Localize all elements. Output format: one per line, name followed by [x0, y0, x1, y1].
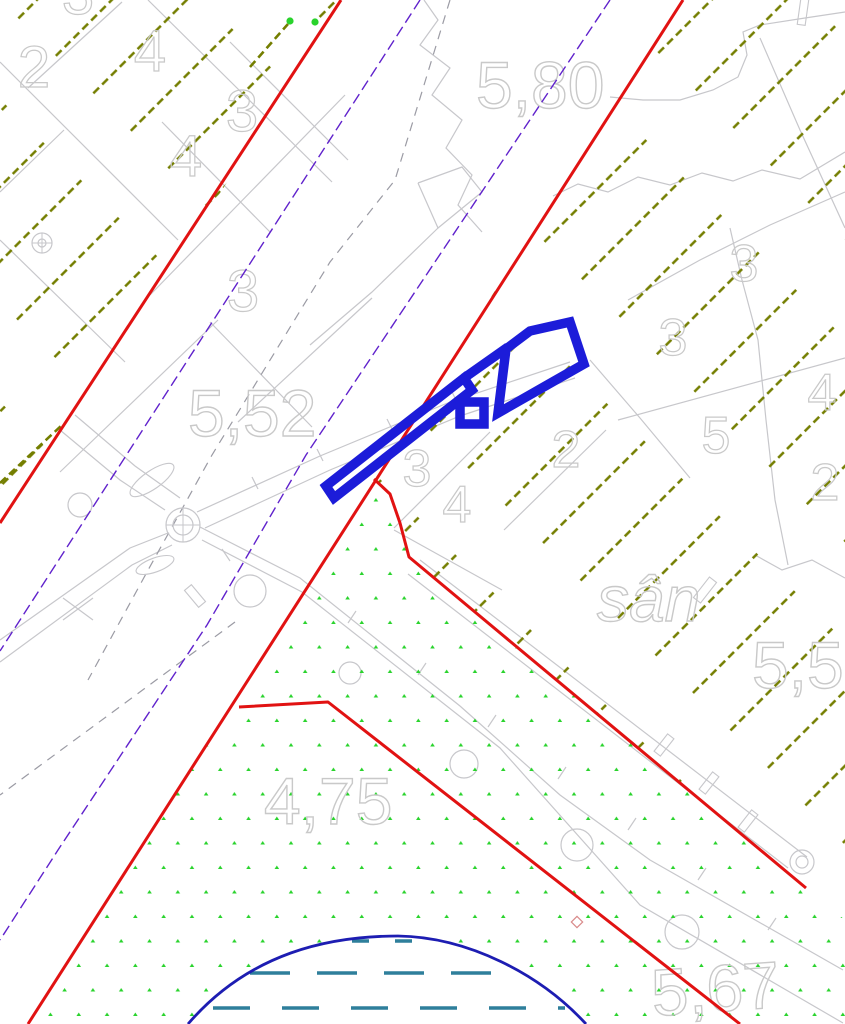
- parcel-number: 3: [730, 235, 759, 293]
- parcel-number: 3: [659, 309, 688, 367]
- parcel-number: 2: [552, 421, 581, 479]
- terrain-blob-outline: [134, 552, 176, 579]
- parcel-number: 3: [403, 440, 432, 498]
- parcel-number: 2: [18, 35, 50, 100]
- road-tick-mark: [222, 549, 230, 561]
- grass-hatch-region: [0, 0, 345, 533]
- parcel-number: 3: [227, 259, 259, 324]
- parcel-line: [420, 0, 482, 232]
- parcel-number: 5: [702, 407, 731, 465]
- elevation-label: 4,75: [264, 764, 392, 838]
- survey-point-marker: [311, 18, 318, 25]
- cadastral-map-view: 2433435,805,5234233542sân5,54,755,67: [0, 0, 845, 1024]
- parcel-line: [60, 430, 165, 510]
- culvert-symbol: [184, 585, 205, 608]
- elevation-label: 5,67: [649, 947, 782, 1024]
- parcel-number: 4: [443, 476, 472, 534]
- elevation-label: 5,5: [752, 628, 844, 702]
- parcel-number: 4: [808, 364, 837, 422]
- elevation-label: 5,80: [476, 48, 604, 122]
- elevation-label: 5,52: [188, 376, 316, 450]
- parcel-number: 4: [134, 19, 166, 84]
- parcel-number: 4: [170, 124, 202, 189]
- landuse-label: sân: [597, 563, 700, 635]
- parcel-number: 2: [811, 454, 840, 512]
- parcel-line: [418, 167, 482, 228]
- parcel-line: [0, 533, 168, 640]
- cadastral-map-canvas: 2433435,805,5234233542sân5,54,755,67: [0, 0, 845, 1024]
- survey-point-marker: [286, 17, 293, 24]
- parcel-number: 3: [62, 0, 94, 27]
- survey-circle-symbol: [234, 575, 266, 607]
